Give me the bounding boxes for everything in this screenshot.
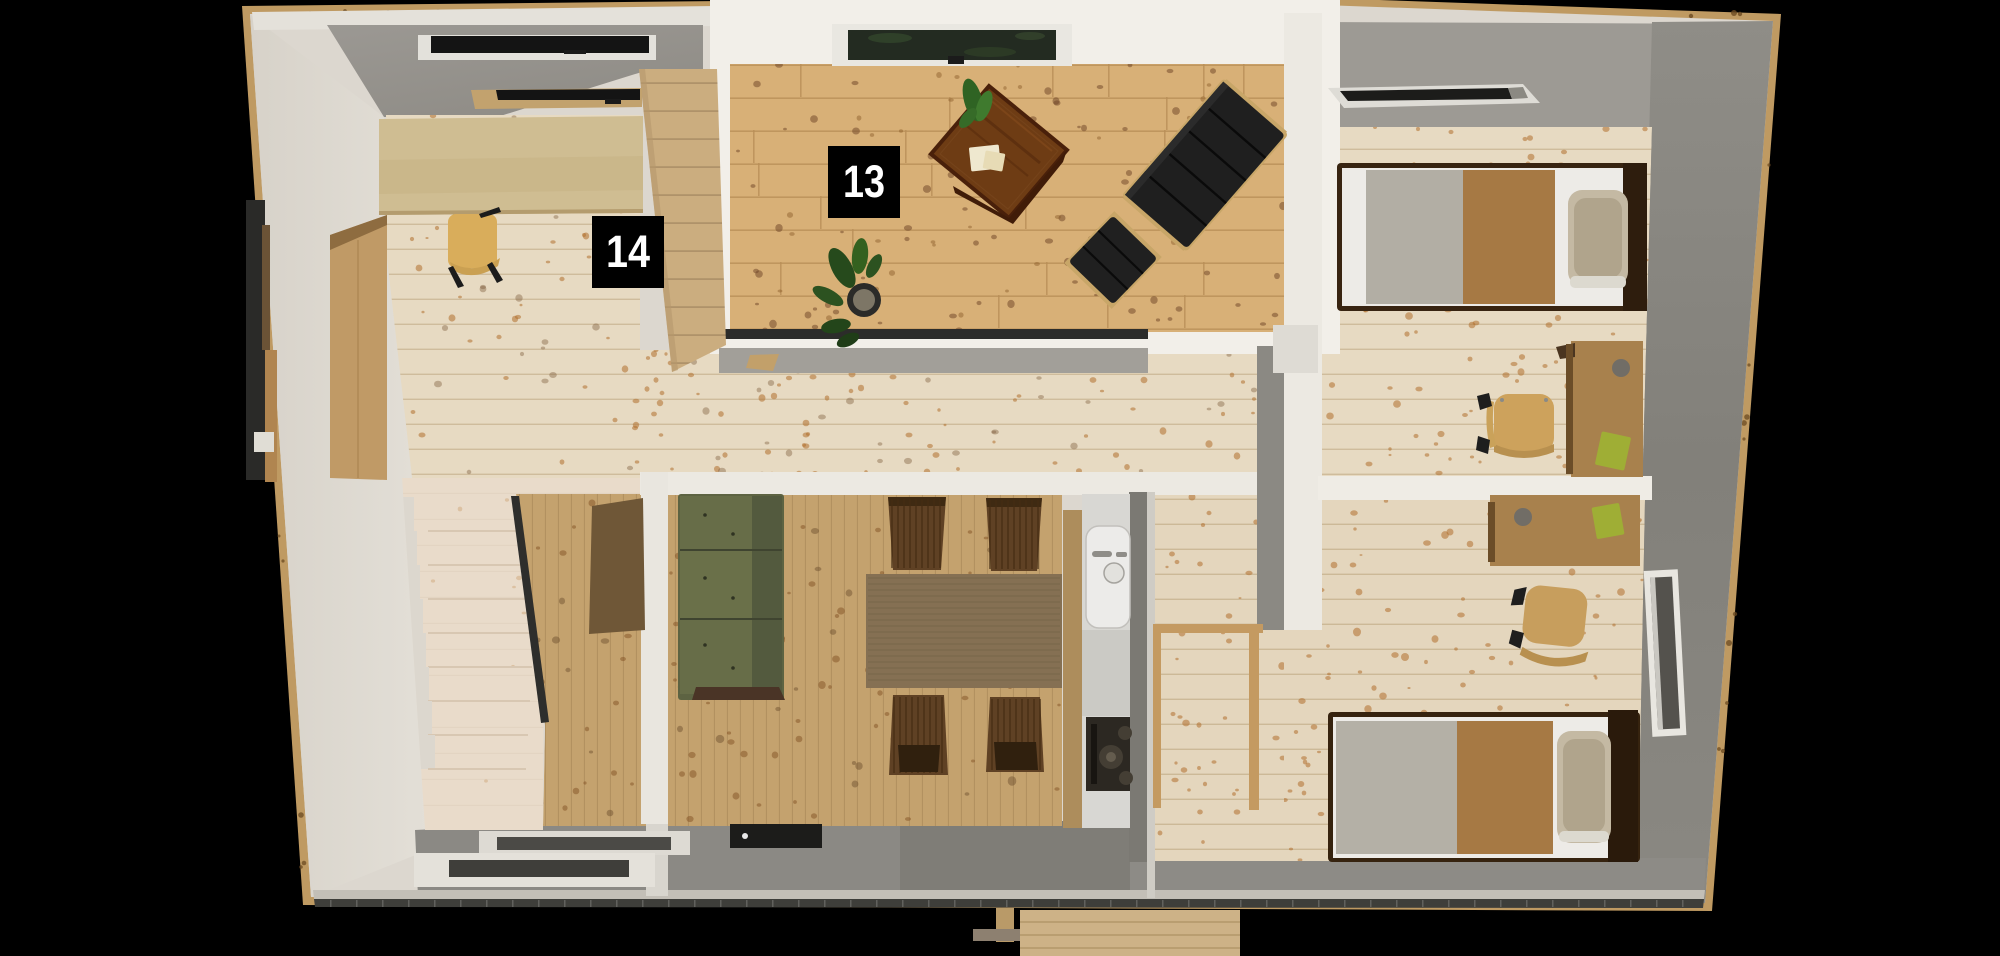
- svg-text:14: 14: [606, 226, 650, 277]
- svg-text:13: 13: [843, 156, 885, 207]
